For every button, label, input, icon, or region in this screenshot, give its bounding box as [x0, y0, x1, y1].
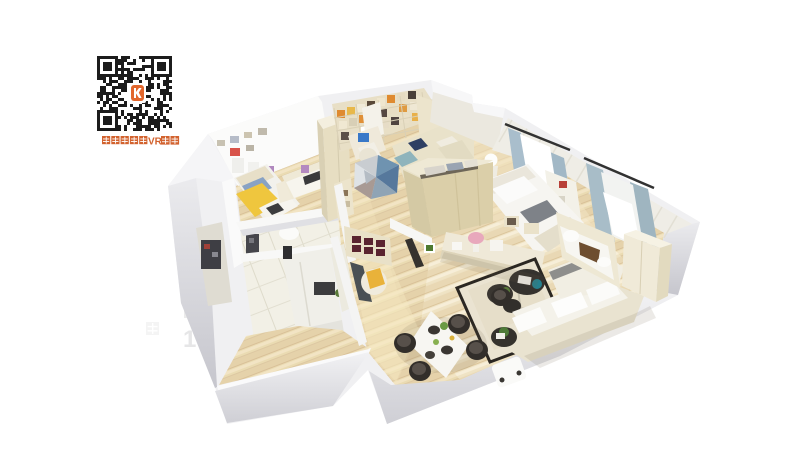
svg-text:VR: VR — [148, 137, 163, 148]
